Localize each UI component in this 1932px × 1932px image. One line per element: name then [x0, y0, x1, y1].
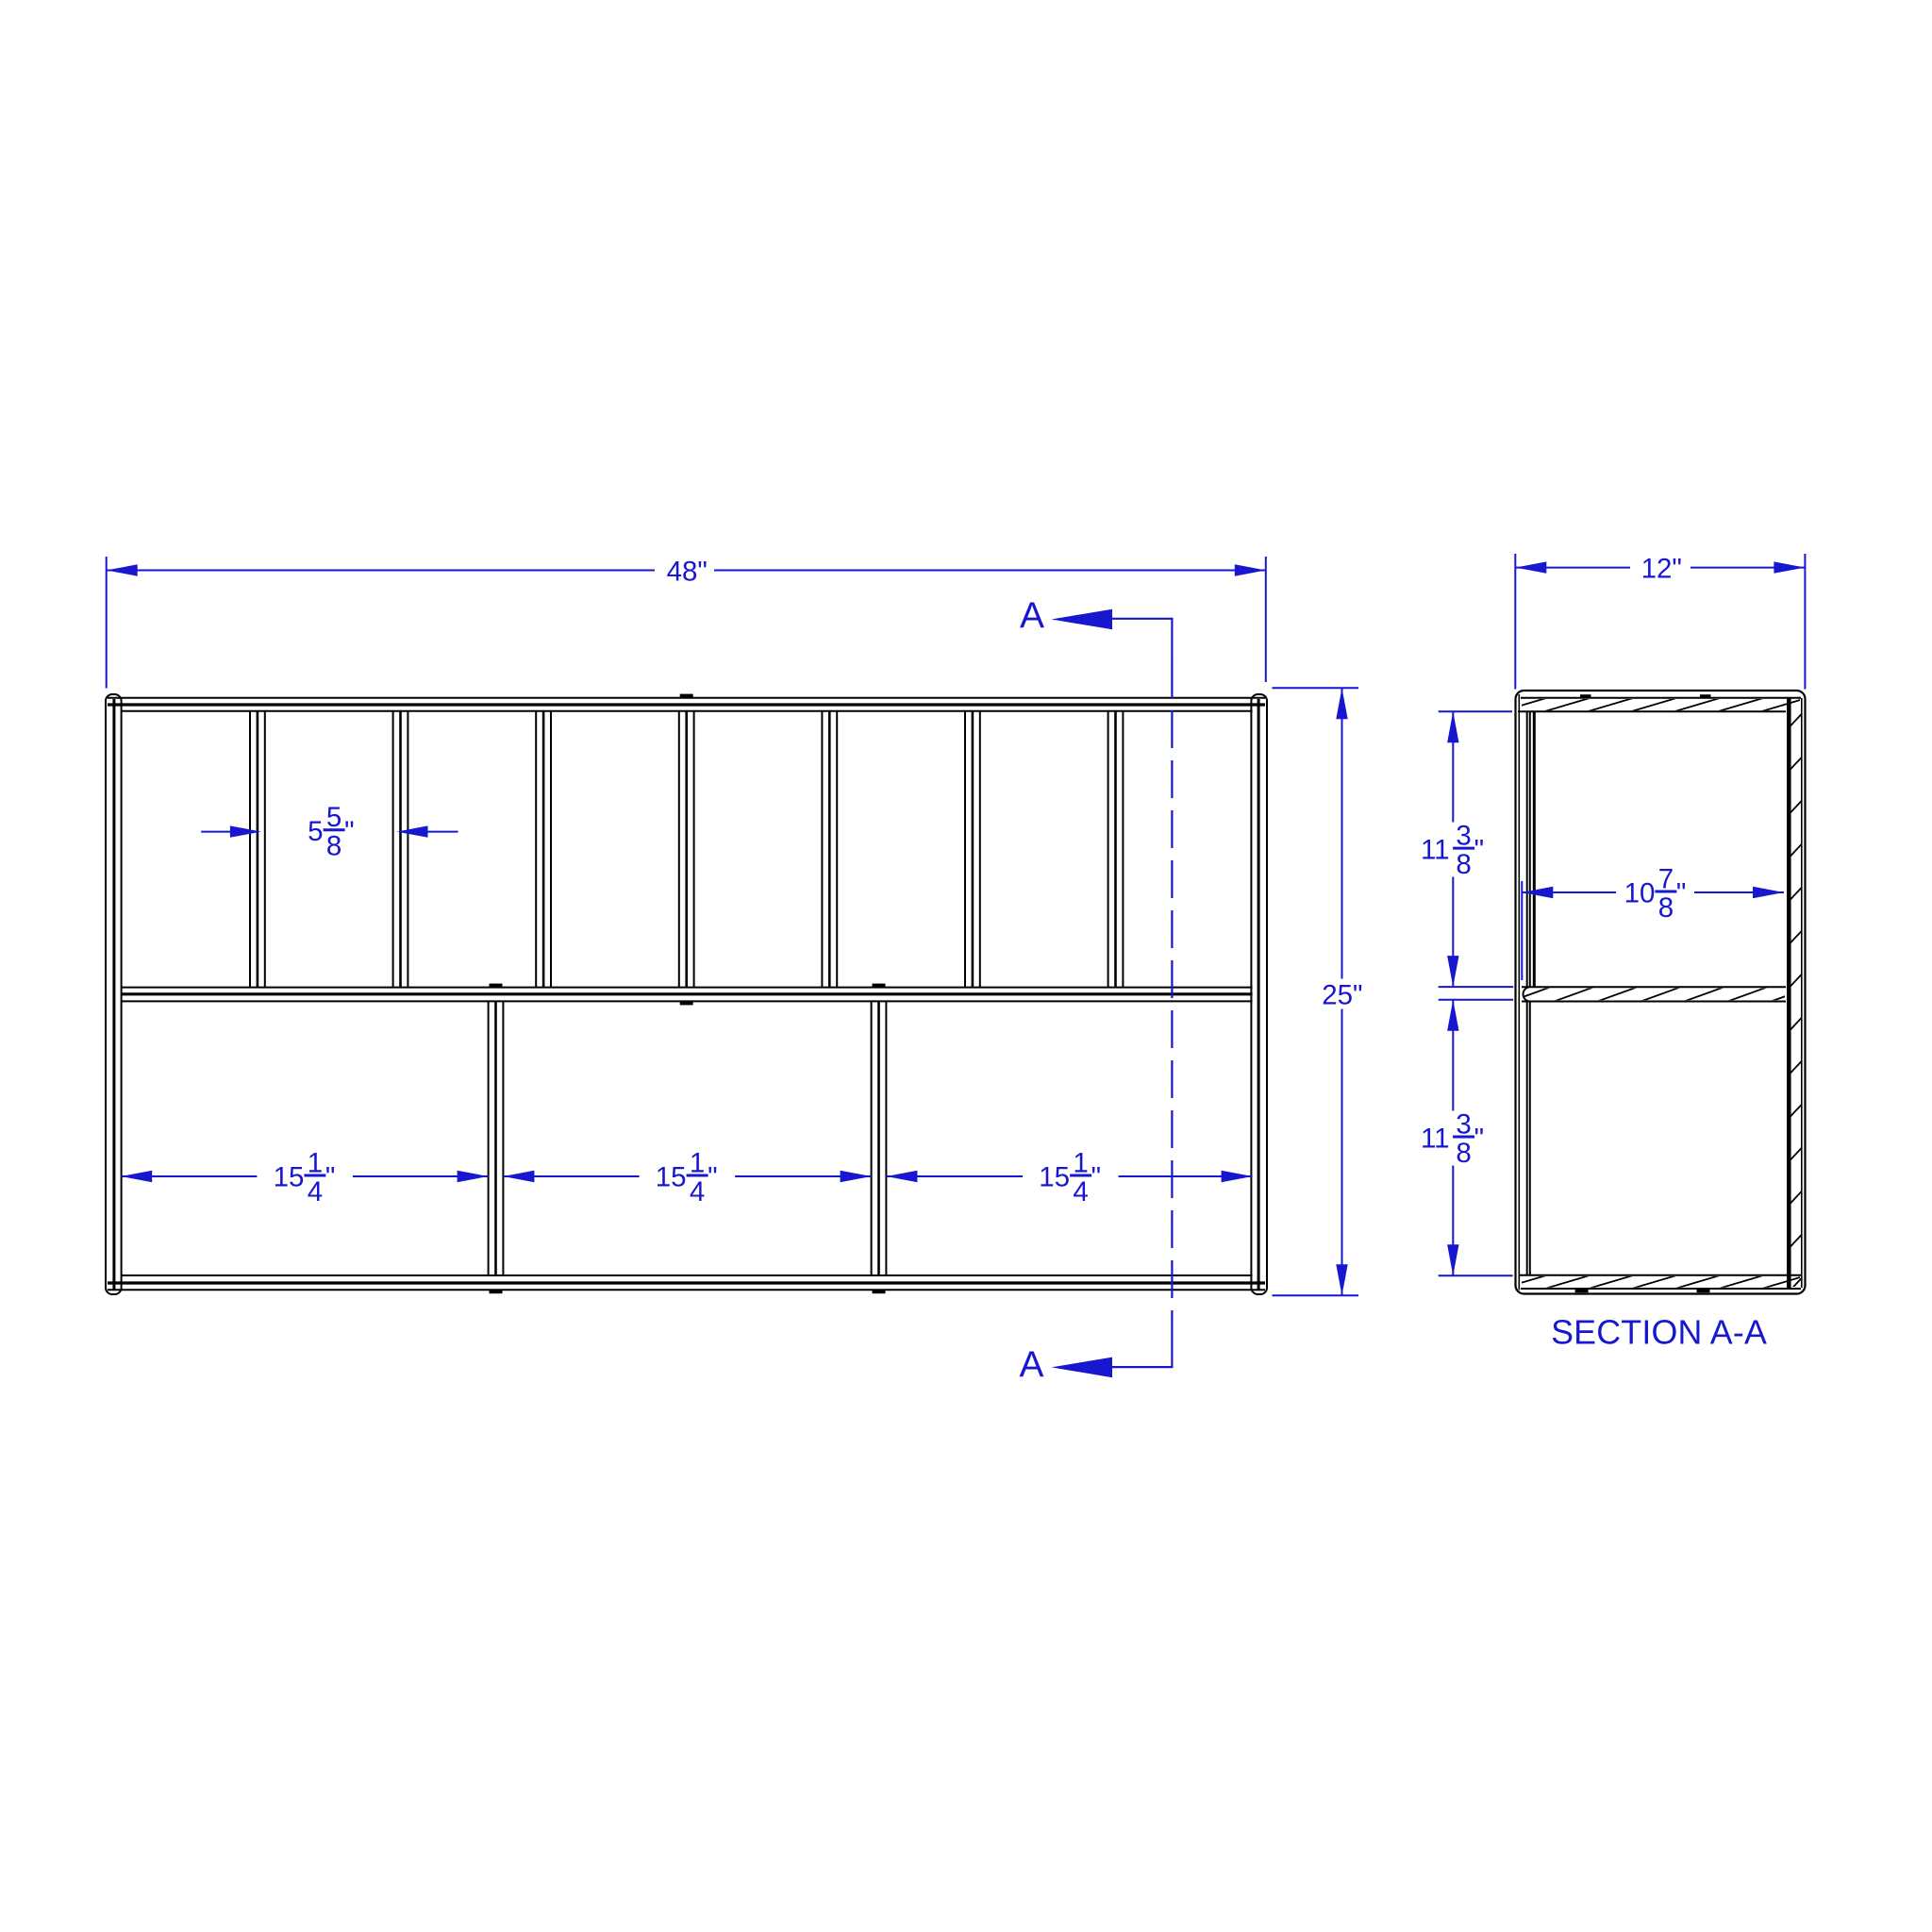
- svg-text:15: 15: [1039, 1162, 1070, 1193]
- svg-text:8: 8: [1658, 892, 1674, 924]
- svg-text:": ": [344, 816, 354, 847]
- svg-text:4: 4: [690, 1176, 705, 1207]
- svg-text:": ": [708, 1162, 717, 1193]
- svg-text:": ": [325, 1162, 335, 1193]
- svg-text:": ": [1676, 878, 1686, 909]
- svg-text:12": 12": [1641, 553, 1682, 584]
- svg-text:A: A: [1020, 596, 1044, 637]
- svg-text:": ": [1091, 1162, 1101, 1193]
- svg-text:11: 11: [1421, 835, 1450, 866]
- svg-text:8: 8: [1456, 1138, 1471, 1169]
- svg-text:4: 4: [1073, 1176, 1088, 1207]
- svg-text:": ": [1474, 835, 1484, 866]
- svg-text:48": 48": [667, 556, 708, 587]
- svg-text:": ": [1474, 1124, 1484, 1155]
- svg-text:11: 11: [1421, 1124, 1450, 1155]
- svg-text:10: 10: [1624, 878, 1656, 909]
- svg-text:SECTION A-A: SECTION A-A: [1551, 1313, 1767, 1351]
- svg-text:4: 4: [308, 1176, 323, 1207]
- svg-text:A: A: [1019, 1345, 1043, 1386]
- svg-text:15: 15: [274, 1162, 305, 1193]
- svg-text:8: 8: [1456, 849, 1471, 880]
- svg-text:8: 8: [326, 831, 341, 862]
- svg-text:25": 25": [1322, 979, 1362, 1010]
- svg-text:5: 5: [308, 816, 323, 847]
- svg-text:15: 15: [656, 1162, 687, 1193]
